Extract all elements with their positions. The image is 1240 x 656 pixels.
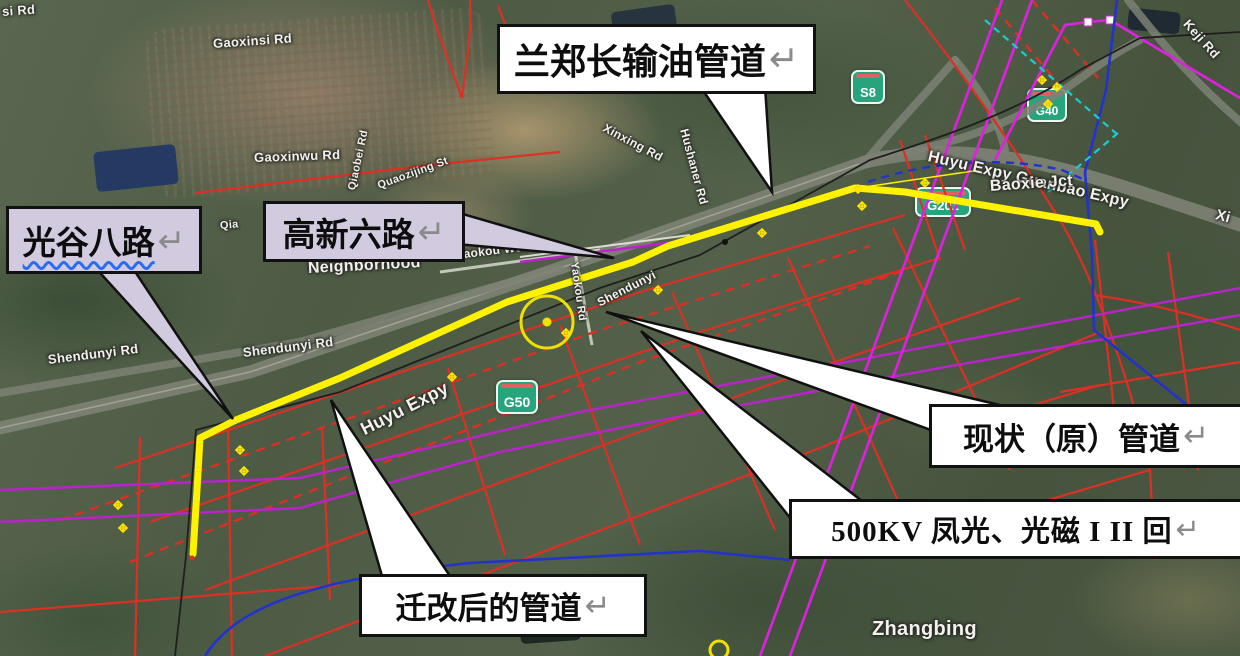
return-mark-icon: ↵	[769, 39, 799, 80]
return-mark-icon: ↵	[1176, 512, 1201, 546]
callout-relocated-pipeline: 迁改后的管道↵	[359, 574, 647, 637]
tail-lanzheng	[700, 86, 772, 192]
callout-guanggu-8th-road: 光谷八路↵	[6, 206, 202, 274]
callout-text: 高新六路	[283, 208, 415, 256]
return-mark-icon: ↵	[158, 221, 186, 260]
callout-existing-pipeline: 现状（原）管道↵	[929, 404, 1240, 468]
pipeline-relocation-map: G201 G40	[0, 0, 1240, 656]
callout-text: 现状（原）管道	[963, 414, 1180, 459]
return-mark-icon: ↵	[585, 588, 611, 624]
callout-text: 光谷八路	[23, 216, 155, 264]
callout-text: 迁改后的管道	[396, 583, 582, 628]
callout-text: 兰郑长输油管道	[514, 33, 766, 85]
callout-lanzheng-pipeline: 兰郑长输油管道↵	[497, 24, 816, 94]
callout-text: 500KV 凤光、光磁 I II 回	[831, 508, 1172, 550]
tail-guanggu	[92, 264, 233, 419]
callout-gaoxin-6th-road: 高新六路↵	[263, 201, 465, 262]
return-mark-icon: ↵	[418, 212, 446, 251]
return-mark-icon: ↵	[1183, 418, 1209, 454]
callout-500kv-lines: 500KV 凤光、光磁 I II 回↵	[789, 499, 1240, 559]
tail-gaoxin	[456, 212, 614, 258]
tail-qiangai	[331, 400, 450, 576]
